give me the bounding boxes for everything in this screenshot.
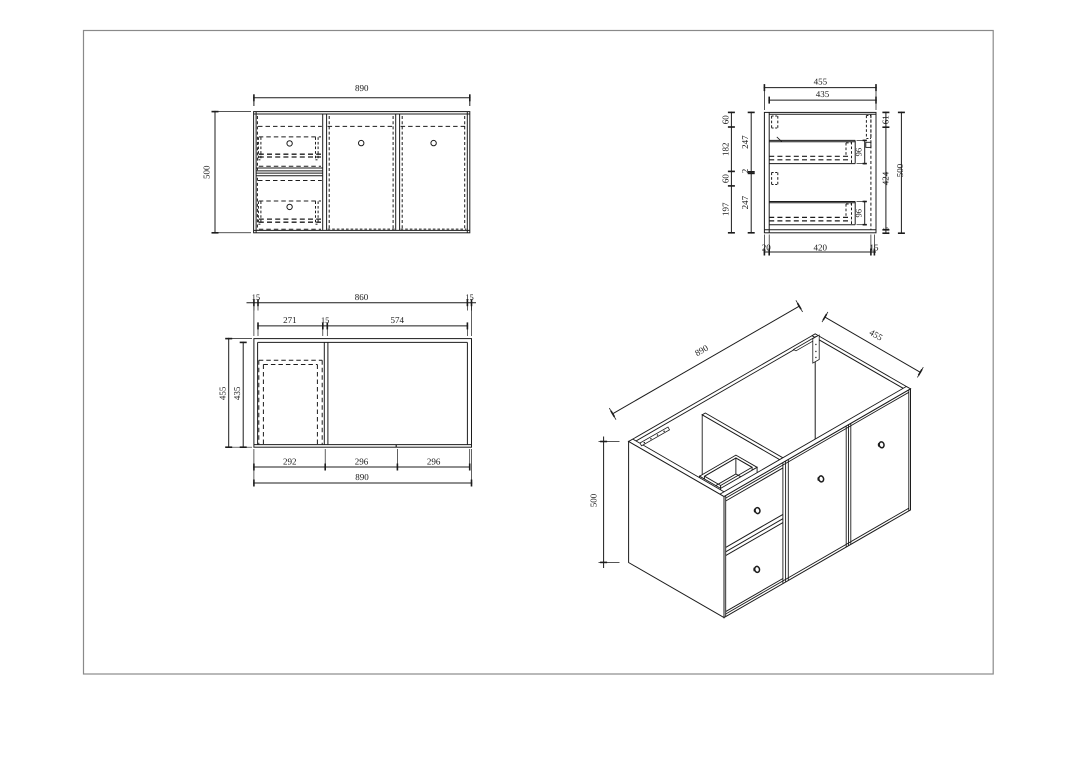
svg-text:96: 96 bbox=[854, 209, 864, 218]
svg-text:296: 296 bbox=[427, 456, 441, 466]
svg-text:500: 500 bbox=[895, 163, 905, 177]
svg-text:15: 15 bbox=[882, 227, 891, 235]
svg-text:296: 296 bbox=[355, 456, 369, 466]
svg-text:455: 455 bbox=[218, 386, 228, 400]
svg-text:424: 424 bbox=[881, 171, 891, 185]
svg-text:455: 455 bbox=[814, 76, 828, 86]
svg-text:15: 15 bbox=[321, 315, 330, 325]
svg-text:60: 60 bbox=[720, 115, 730, 125]
svg-text:860: 860 bbox=[355, 292, 369, 302]
svg-text:2: 2 bbox=[740, 169, 750, 174]
svg-text:60: 60 bbox=[720, 174, 730, 184]
svg-text:420: 420 bbox=[813, 243, 827, 253]
svg-text:435: 435 bbox=[232, 386, 242, 400]
svg-text:247: 247 bbox=[740, 135, 750, 149]
svg-text:271: 271 bbox=[283, 315, 297, 325]
svg-text:890: 890 bbox=[355, 83, 369, 93]
svg-text:20: 20 bbox=[762, 243, 772, 253]
svg-text:247: 247 bbox=[740, 195, 750, 209]
svg-text:15: 15 bbox=[465, 292, 474, 302]
svg-text:96: 96 bbox=[854, 148, 864, 157]
svg-text:15: 15 bbox=[252, 292, 261, 302]
svg-text:292: 292 bbox=[283, 456, 297, 466]
svg-text:197: 197 bbox=[720, 202, 730, 216]
svg-text:500: 500 bbox=[589, 493, 599, 507]
svg-text:61: 61 bbox=[881, 115, 891, 124]
svg-text:435: 435 bbox=[816, 89, 830, 99]
svg-text:15: 15 bbox=[870, 243, 880, 253]
svg-text:182: 182 bbox=[720, 142, 730, 156]
svg-text:890: 890 bbox=[355, 472, 369, 482]
svg-text:500: 500 bbox=[202, 165, 212, 179]
svg-text:574: 574 bbox=[391, 315, 405, 325]
